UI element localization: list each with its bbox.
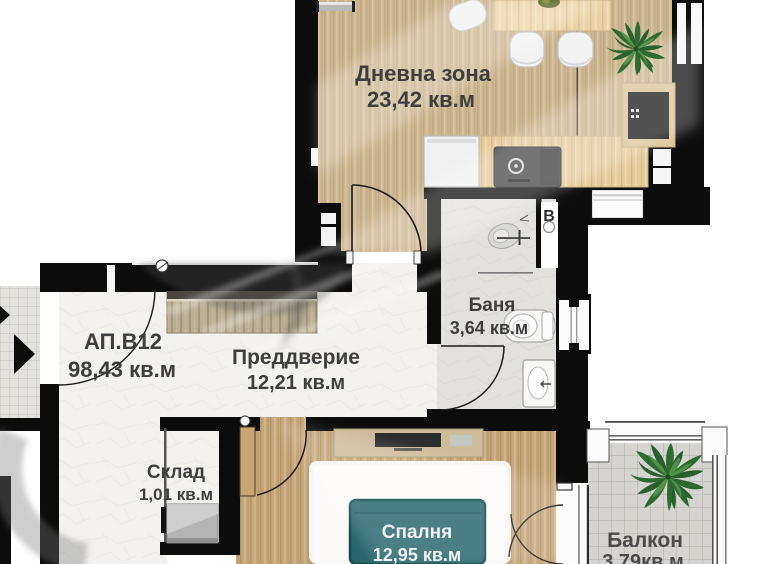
svg-text:Баня: Баня bbox=[469, 295, 516, 316]
svg-text:АП.В12: АП.В12 bbox=[84, 329, 162, 354]
svg-text:23,42 кв.м: 23,42 кв.м bbox=[367, 87, 475, 112]
svg-text:Склад: Склад bbox=[147, 462, 205, 483]
svg-text:3,79кв.м: 3,79кв.м bbox=[602, 551, 684, 564]
svg-text:Спалня: Спалня bbox=[382, 522, 452, 543]
svg-text:3,64 кв.м: 3,64 кв.м bbox=[450, 318, 528, 338]
svg-text:Преддверие: Преддверие bbox=[232, 346, 360, 369]
svg-text:1,01 кв.м: 1,01 кв.м bbox=[139, 485, 213, 504]
svg-text:12,21 кв.м: 12,21 кв.м bbox=[247, 372, 345, 394]
svg-text:12,95 кв.м: 12,95 кв.м bbox=[373, 545, 461, 564]
svg-text:98,43 кв.м: 98,43 кв.м bbox=[68, 357, 176, 382]
svg-text:Дневна зона: Дневна зона bbox=[355, 61, 491, 86]
svg-text:Балкон: Балкон bbox=[607, 529, 683, 552]
